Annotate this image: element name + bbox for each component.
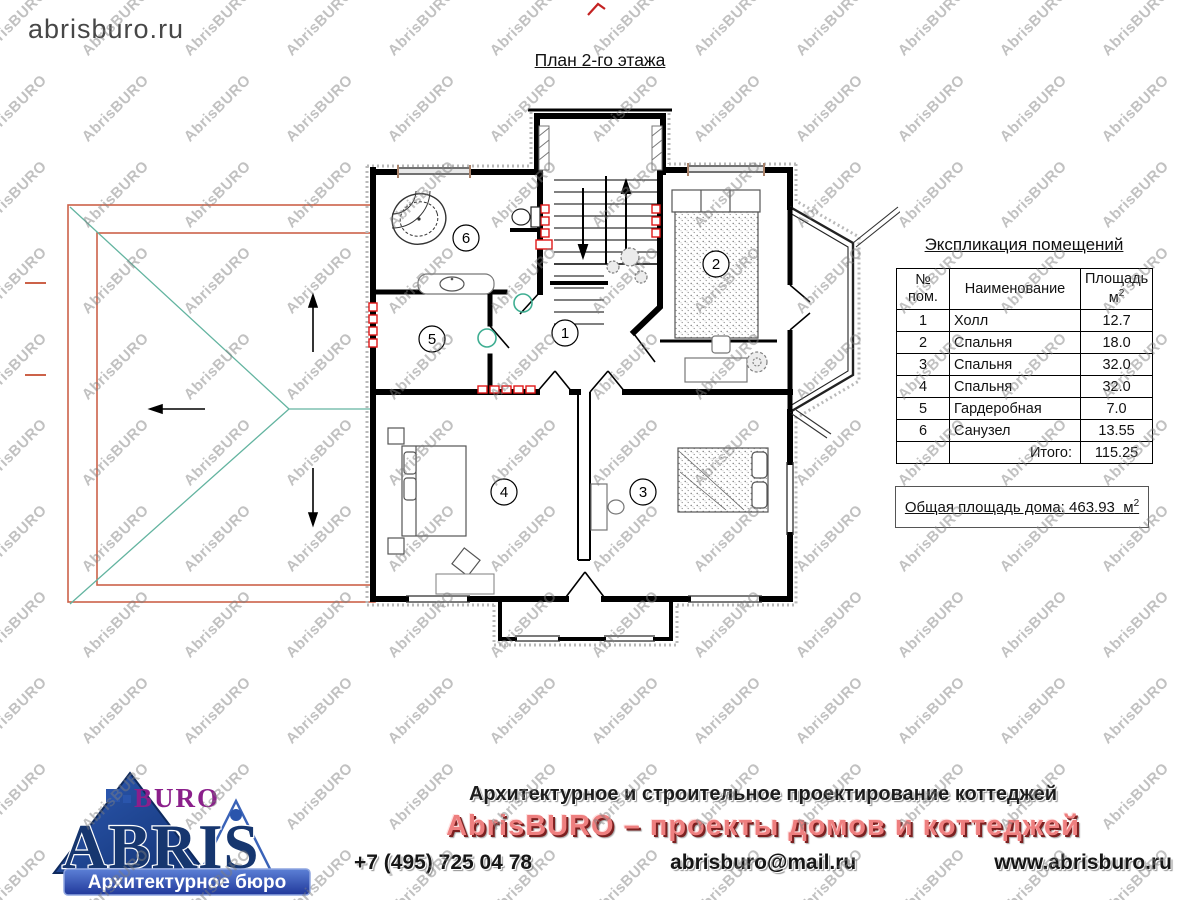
watermark-text: AbrisBURO <box>0 72 50 146</box>
svg-text:4: 4 <box>500 484 508 501</box>
bed-room3 <box>678 448 768 512</box>
window-sill-ticks <box>398 163 764 178</box>
watermark-text: AbrisBURO <box>793 330 867 404</box>
watermark-text: AbrisBURO <box>691 416 765 490</box>
watermark-text: AbrisBURO <box>691 244 765 318</box>
footer: BURO ABRIS Архитектурное бюро Архитектур… <box>0 765 1200 900</box>
watermark-text: AbrisBURO <box>385 588 459 662</box>
watermark-text: AbrisBURO <box>487 502 561 576</box>
watermark-text: AbrisBURO <box>283 72 357 146</box>
watermark-text: AbrisBURO <box>589 502 663 576</box>
watermark-text: AbrisBURO <box>0 158 50 232</box>
table-row: 4Спальня32.0 <box>897 376 1153 398</box>
watermark-text: AbrisBURO <box>1099 72 1173 146</box>
table-cell-area: 32.0 <box>1081 354 1153 376</box>
watermark-text: AbrisBURO <box>997 158 1071 232</box>
watermark-text: AbrisBURO <box>181 158 255 232</box>
logo-block <box>106 789 120 802</box>
watermark-text: AbrisBURO <box>793 674 867 748</box>
windows <box>398 165 793 641</box>
table-row: 1Холл12.7 <box>897 310 1153 332</box>
stair-arrows <box>579 181 630 257</box>
red-mark <box>586 0 608 16</box>
vent-shaft-wall <box>578 392 590 560</box>
table-cell-name: Холл <box>950 310 1081 332</box>
watermark-text: AbrisBURO <box>793 72 867 146</box>
watermark-text: AbrisBURO <box>385 0 459 59</box>
svg-text:1: 1 <box>561 325 569 342</box>
site-label: abrisburo.ru <box>28 14 184 45</box>
watermark-text: AbrisBURO <box>0 674 50 748</box>
watermark-text: AbrisBURO <box>793 0 867 59</box>
table-header-row: №пом. Наименование Площадь м2 <box>897 269 1153 310</box>
watermark-text: AbrisBURO <box>487 330 561 404</box>
svg-text:6: 6 <box>462 230 470 247</box>
watermark-text: AbrisBURO <box>283 674 357 748</box>
stairs <box>554 176 658 324</box>
table-row: 2Спальня18.0 <box>897 332 1153 354</box>
watermark-text: AbrisBURO <box>0 502 50 576</box>
total-area-box: Общая площадь дома: 463.93 м2 <box>895 486 1149 528</box>
radiators <box>369 205 660 393</box>
table-row: 3Спальня32.0 <box>897 354 1153 376</box>
door-circles <box>478 294 532 347</box>
table-cell-num: 4 <box>897 376 950 398</box>
watermark-text: AbrisBURO <box>181 0 255 59</box>
watermark-text: AbrisBURO <box>79 416 153 490</box>
table-row: 6Санузел13.55 <box>897 420 1153 442</box>
watermark-text: AbrisBURO <box>79 158 153 232</box>
watermark-text: AbrisBURO <box>997 0 1071 59</box>
desk-room2 <box>685 336 747 382</box>
svg-text:5: 5 <box>428 331 436 348</box>
dresser-room3 <box>591 484 624 530</box>
table-cell-name: Гардеробная <box>950 398 1081 420</box>
svg-text:3: 3 <box>639 484 647 501</box>
watermark-text: AbrisBURO <box>589 72 663 146</box>
watermark-text: AbrisBURO <box>79 502 153 576</box>
watermark-text: AbrisBURO <box>79 330 153 404</box>
watermark-text: AbrisBURO <box>283 416 357 490</box>
watermark-text: AbrisBURO <box>793 588 867 662</box>
footer-contacts: +7 (495) 725 04 78 abrisburo@mail.ru www… <box>332 851 1194 875</box>
table-cell-num: 5 <box>897 398 950 420</box>
watermark-text: AbrisBURO <box>589 158 663 232</box>
table-cell-name: Спальня <box>950 332 1081 354</box>
page: { "site_label": "abrisburo.ru", "plan": … <box>0 0 1200 900</box>
footer-phone: +7 (495) 725 04 78 <box>354 851 532 875</box>
bathtub <box>386 187 453 251</box>
watermark-text: AbrisBURO <box>1099 674 1173 748</box>
watermark-text: AbrisBURO <box>385 330 459 404</box>
table-cell-area: 12.7 <box>1081 310 1153 332</box>
plants-hall <box>607 248 647 283</box>
watermark-text: AbrisBURO <box>691 674 765 748</box>
watermark-text: AbrisBURO <box>487 674 561 748</box>
roof-outline <box>25 205 375 604</box>
logo-block-small <box>123 795 131 803</box>
watermark-text: AbrisBURO <box>181 674 255 748</box>
plan-title: План 2-го этажа <box>450 50 750 71</box>
abris-logo: BURO ABRIS Архитектурное бюро <box>50 769 312 899</box>
watermark-text: AbrisBURO <box>691 588 765 662</box>
watermark-text: AbrisBURO <box>589 330 663 404</box>
room-label-4: 4 <box>491 479 517 505</box>
header-area: Площадь м2 <box>1081 269 1153 310</box>
watermark-text: AbrisBURO <box>0 416 50 490</box>
watermark-text: AbrisBURO <box>181 72 255 146</box>
watermark-text: AbrisBURO <box>997 674 1071 748</box>
header-name: Наименование <box>950 269 1081 310</box>
watermark-text: AbrisBURO <box>385 72 459 146</box>
watermark-text: AbrisBURO <box>487 244 561 318</box>
watermark-text: AbrisBURO <box>691 502 765 576</box>
wall-hatch-band <box>367 110 859 645</box>
watermark-text: AbrisBURO <box>895 0 969 59</box>
watermark-text: AbrisBURO <box>1099 0 1173 59</box>
watermark-text: AbrisBURO <box>487 158 561 232</box>
floor-plan-svg: 1 2 3 4 5 6 <box>0 90 900 690</box>
watermark-text: AbrisBURO <box>283 330 357 404</box>
watermark-text: AbrisBURO <box>895 72 969 146</box>
watermark-text: AbrisBURO <box>793 502 867 576</box>
table-cell-num: 1 <box>897 310 950 332</box>
logo-subtitle: Архитектурное бюро <box>88 872 287 893</box>
watermark-text: AbrisBURO <box>283 158 357 232</box>
table-cell-name: Санузел <box>950 420 1081 442</box>
explication-title: Экспликация помещений <box>898 235 1150 255</box>
watermark-text: AbrisBURO <box>181 244 255 318</box>
header-room-number: №пом. <box>897 269 950 310</box>
footer-email[interactable]: abrisburo@mail.ru <box>670 851 856 875</box>
watermark-text: AbrisBURO <box>589 416 663 490</box>
watermark-text: AbrisBURO <box>283 244 357 318</box>
watermark-text: AbrisBURO <box>895 158 969 232</box>
watermark-text: AbrisBURO <box>691 158 765 232</box>
room-label-3: 3 <box>630 479 656 505</box>
watermark-text: AbrisBURO <box>487 72 561 146</box>
room-label-6: 6 <box>453 225 479 251</box>
svg-text:2: 2 <box>712 256 720 273</box>
watermark-text: AbrisBURO <box>1099 158 1173 232</box>
watermark-text: AbrisBURO <box>181 330 255 404</box>
total-area-text: Общая площадь дома: 463.93 м2 <box>905 498 1139 516</box>
watermark-text: AbrisBURO <box>589 588 663 662</box>
watermark-text: AbrisBURO <box>691 72 765 146</box>
room-explication-table: №пом. Наименование Площадь м2 1Холл12.72… <box>896 268 1153 464</box>
watermark-text: AbrisBURO <box>181 416 255 490</box>
dresser-room4 <box>436 574 494 594</box>
watermark-text: AbrisBURO <box>0 588 50 662</box>
table-cell-area: 7.0 <box>1081 398 1153 420</box>
total-label: Итого: <box>950 442 1081 464</box>
plan-walls <box>373 116 790 639</box>
bay-window <box>790 207 900 438</box>
watermark-text: AbrisBURO <box>79 674 153 748</box>
watermark-text: AbrisBURO <box>997 72 1071 146</box>
watermark-text: AbrisBURO <box>997 588 1071 662</box>
watermark-text: AbrisBURO <box>79 72 153 146</box>
table-cell-num: 2 <box>897 332 950 354</box>
plant-room2 <box>747 352 767 372</box>
logo-buro-text: BURO <box>134 783 220 813</box>
watermark-text: AbrisBURO <box>793 416 867 490</box>
footer-slogan: AbrisBURO – проекты домов и коттеджей <box>332 810 1194 843</box>
room-label-2: 2 <box>703 251 729 277</box>
watermark-text: AbrisBURO <box>895 588 969 662</box>
watermark-text: AbrisBURO <box>487 588 561 662</box>
footer-tagline: Архитектурное и строительное проектирова… <box>332 783 1194 806</box>
watermark-text: AbrisBURO <box>1099 588 1173 662</box>
room-table-body: 1Холл12.72Спальня18.03Спальня32.04Спальн… <box>897 310 1153 442</box>
watermark-text: AbrisBURO <box>589 674 663 748</box>
watermark-text: AbrisBURO <box>0 330 50 404</box>
toilet <box>512 207 540 227</box>
table-cell-name: Спальня <box>950 376 1081 398</box>
room-numbers: 1 2 3 4 5 6 <box>419 225 729 505</box>
total-value: 115.25 <box>1081 442 1153 464</box>
table-cell-name: Спальня <box>950 354 1081 376</box>
watermark-text: AbrisBURO <box>79 244 153 318</box>
watermark-text: AbrisBURO <box>181 502 255 576</box>
watermark-text: AbrisBURO <box>79 588 153 662</box>
watermark-text: AbrisBURO <box>385 416 459 490</box>
total-empty-cell <box>897 442 950 464</box>
table-cell-area: 32.0 <box>1081 376 1153 398</box>
room-label-1: 1 <box>552 320 578 346</box>
shaft-side-windows <box>539 126 662 170</box>
table-cell-num: 6 <box>897 420 950 442</box>
watermark-text: AbrisBURO <box>0 244 50 318</box>
footer-website[interactable]: www.abrisburo.ru <box>994 851 1172 875</box>
watermark-text: AbrisBURO <box>385 502 459 576</box>
sink-vanity <box>418 274 494 294</box>
watermark-text: AbrisBURO <box>181 588 255 662</box>
watermark-text: AbrisBURO <box>691 330 765 404</box>
bed-room4 <box>388 428 466 554</box>
watermark-text: AbrisBURO <box>487 416 561 490</box>
table-total-row: Итого: 115.25 <box>897 442 1153 464</box>
watermark-text: AbrisBURO <box>385 674 459 748</box>
ottoman-room4 <box>452 548 480 576</box>
watermark-text: AbrisBURO <box>283 588 357 662</box>
watermark-text: AbrisBURO <box>283 502 357 576</box>
bed-room2 <box>672 190 760 338</box>
roof-slope-arrows <box>150 295 317 525</box>
footer-text-block: Архитектурное и строительное проектирова… <box>332 783 1194 875</box>
watermark-text: AbrisBURO <box>793 158 867 232</box>
table-cell-area: 18.0 <box>1081 332 1153 354</box>
table-cell-num: 3 <box>897 354 950 376</box>
watermark-text: AbrisBURO <box>385 244 459 318</box>
watermark-text: AbrisBURO <box>793 244 867 318</box>
watermark-text: AbrisBURO <box>589 244 663 318</box>
table-row: 5Гардеробная7.0 <box>897 398 1153 420</box>
watermark-text: AbrisBURO <box>385 158 459 232</box>
table-cell-area: 13.55 <box>1081 420 1153 442</box>
watermark-text: AbrisBURO <box>895 674 969 748</box>
door-leaves <box>490 292 655 597</box>
room-label-5: 5 <box>419 326 445 352</box>
watermark-text: AbrisBURO <box>283 0 357 59</box>
